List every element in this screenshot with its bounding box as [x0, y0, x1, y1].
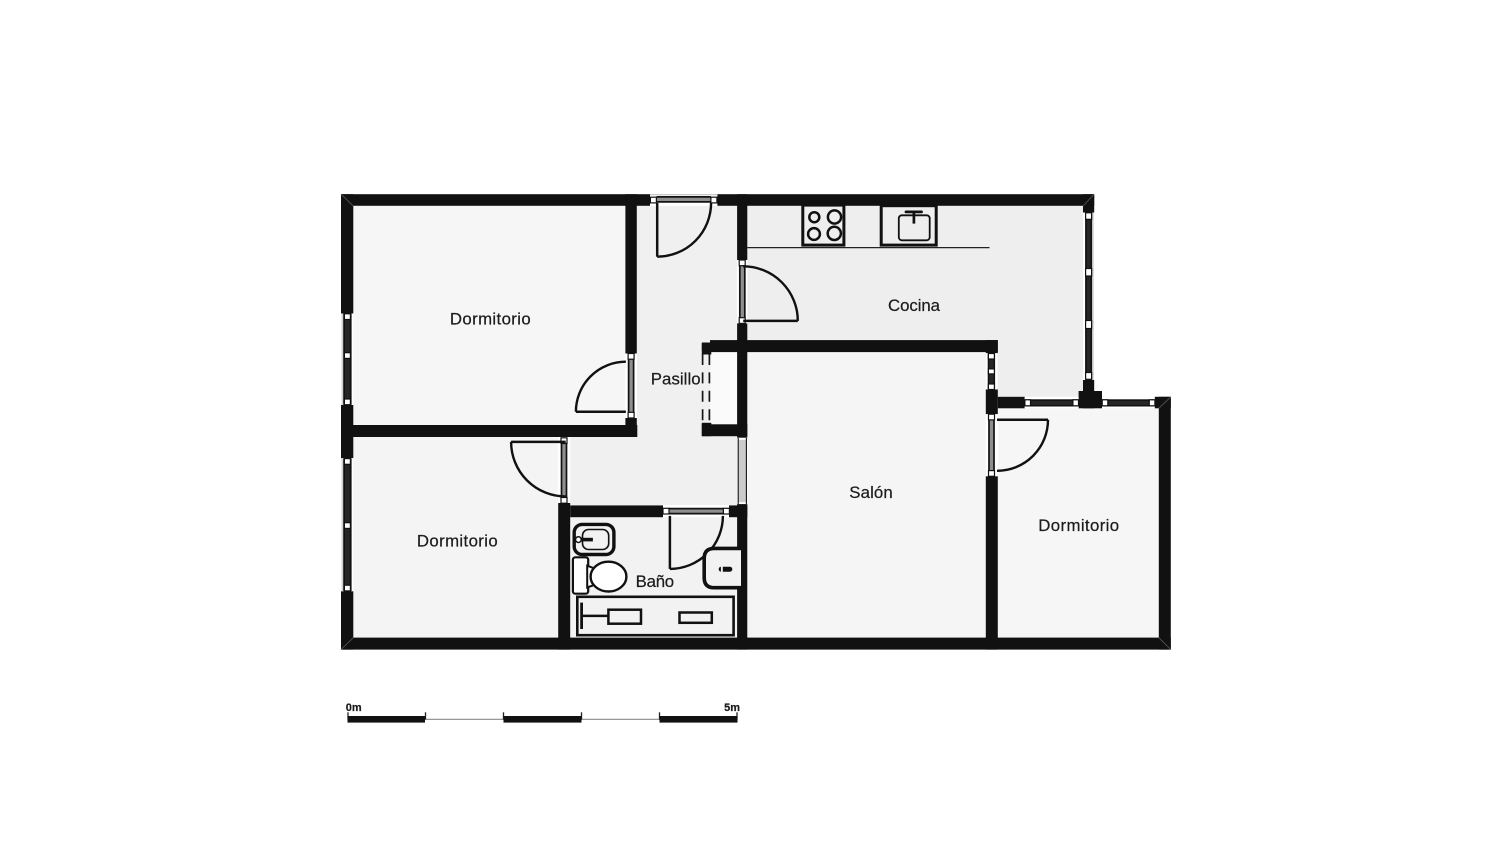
svg-text:0m: 0m	[346, 702, 362, 714]
svg-text:Baño: Baño	[636, 572, 675, 591]
svg-text:Dormitorio: Dormitorio	[450, 309, 531, 328]
svg-text:Pasillo: Pasillo	[651, 370, 701, 389]
svg-text:Cocina: Cocina	[888, 296, 941, 315]
svg-text:5m: 5m	[724, 702, 740, 714]
svg-text:Dormitorio: Dormitorio	[417, 531, 498, 550]
svg-text:Dormitorio: Dormitorio	[1038, 516, 1119, 535]
svg-text:Salón: Salón	[849, 483, 892, 502]
